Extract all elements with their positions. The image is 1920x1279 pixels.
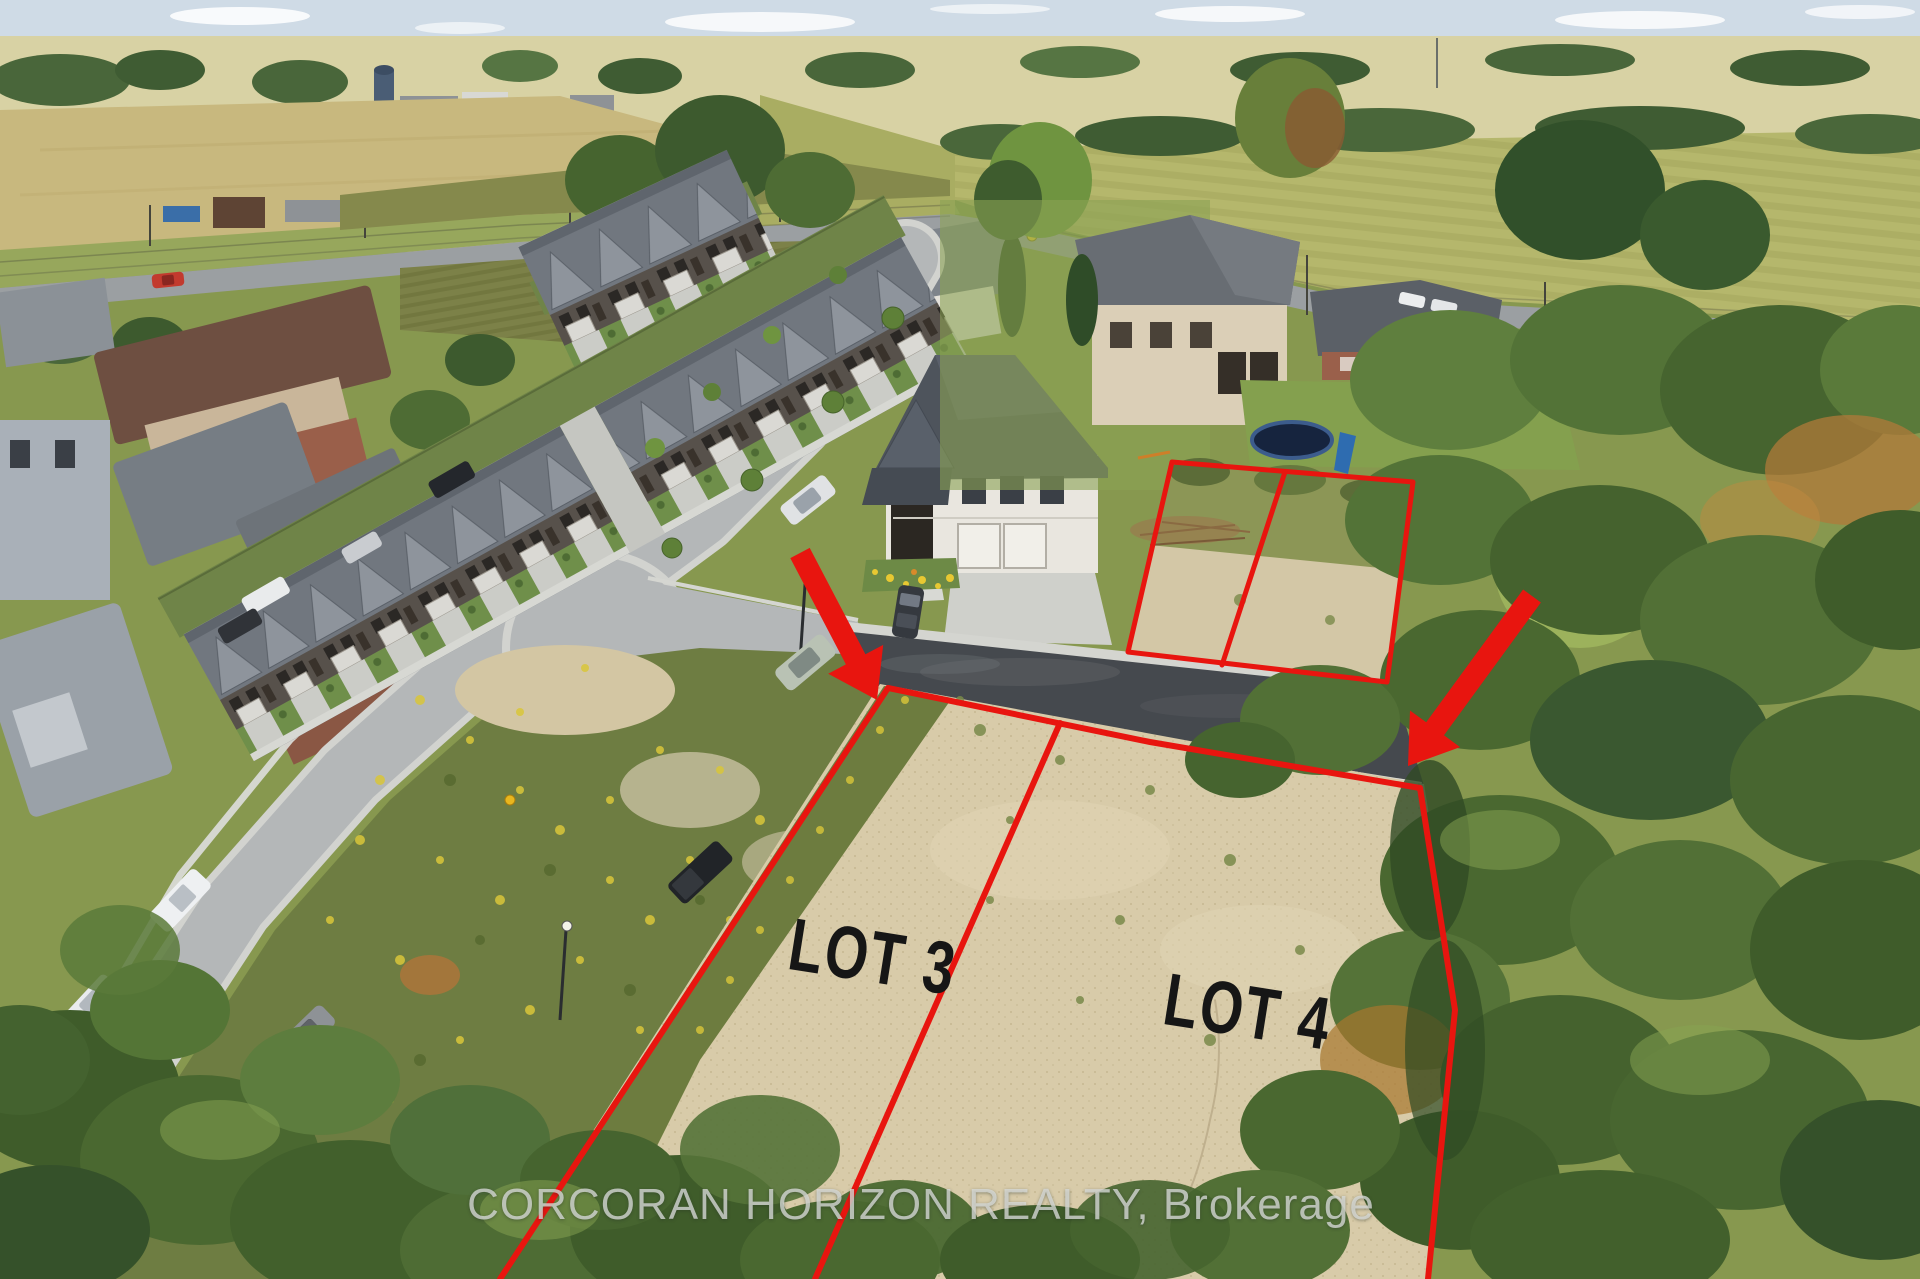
aerial-photo: LOT 3 LOT 4 CORCORAN HORIZON REALTY, Bro… (0, 0, 1920, 1279)
brokerage-watermark: CORCORAN HORIZON REALTY, Brokerage (467, 1180, 1375, 1230)
aerial-photo-scene (0, 0, 1920, 1279)
